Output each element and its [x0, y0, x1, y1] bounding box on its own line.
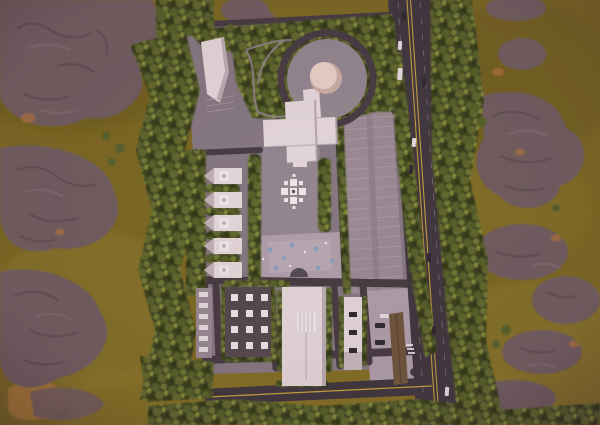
vignette — [0, 0, 600, 425]
atmosphere — [0, 0, 600, 425]
site-plan-canvas — [0, 0, 600, 425]
aerial-site-render — [0, 0, 600, 425]
